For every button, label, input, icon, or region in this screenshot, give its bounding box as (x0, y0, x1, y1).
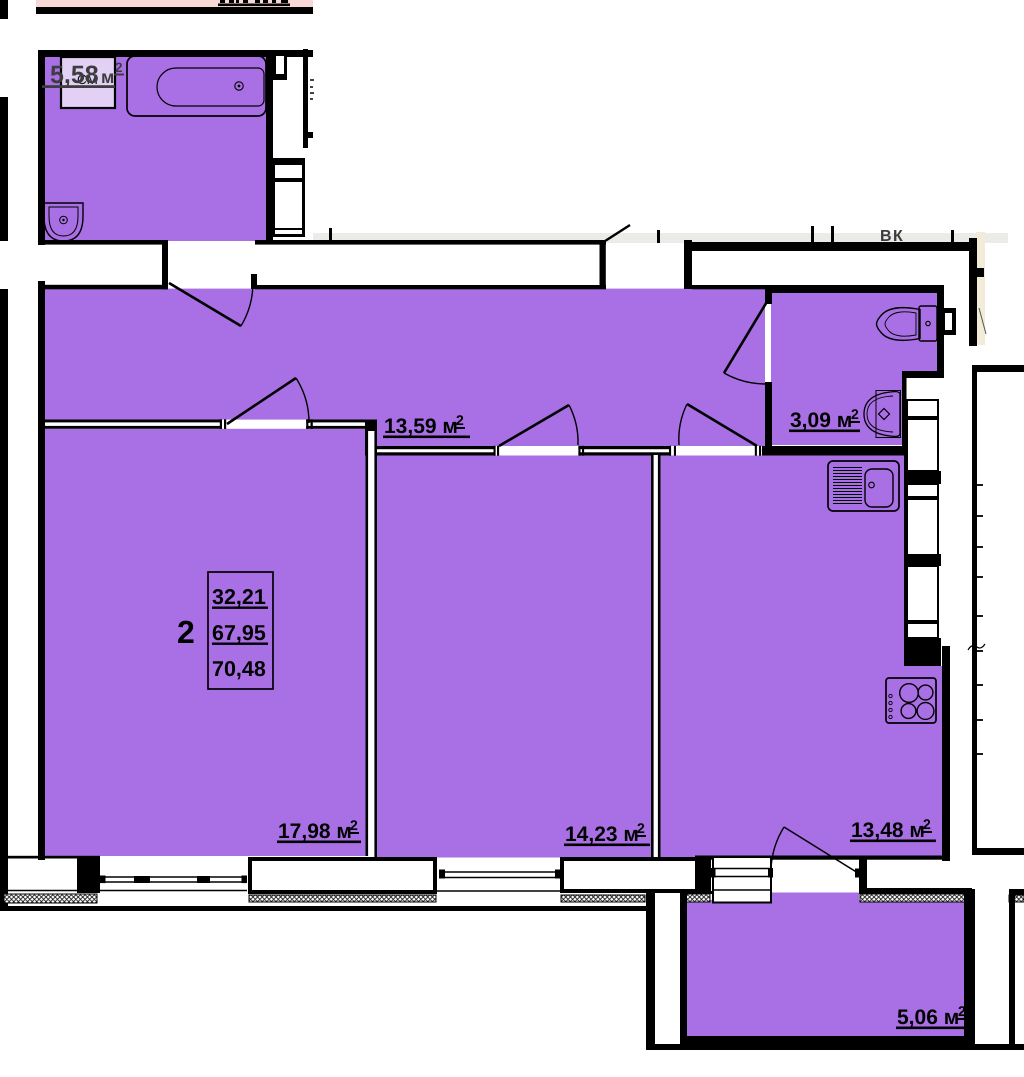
svg-text:5,58: 5,58 (50, 61, 99, 89)
svg-text:2: 2 (115, 60, 123, 75)
svg-text:2: 2 (637, 820, 645, 836)
svg-text:2: 2 (851, 406, 859, 422)
svg-text:67,95: 67,95 (212, 621, 266, 645)
svg-text:3,09 м: 3,09 м (790, 409, 852, 432)
svg-text:17,98 м: 17,98 м (278, 820, 352, 843)
svg-text:м: м (101, 67, 114, 87)
svg-text:70,48: 70,48 (212, 657, 266, 681)
svg-text:2: 2 (350, 817, 358, 833)
svg-text:13,59 м: 13,59 м (384, 415, 458, 438)
svg-text:14,23 м: 14,23 м (565, 823, 639, 846)
svg-text:13,48 м: 13,48 м (851, 819, 925, 842)
svg-text:5,06 м: 5,06 м (897, 1006, 959, 1029)
svg-text:2: 2 (177, 614, 195, 650)
svg-text:32,21: 32,21 (212, 585, 266, 609)
svg-text:2: 2 (958, 1003, 966, 1019)
svg-text:2: 2 (456, 412, 464, 428)
svg-text:2: 2 (923, 816, 931, 832)
